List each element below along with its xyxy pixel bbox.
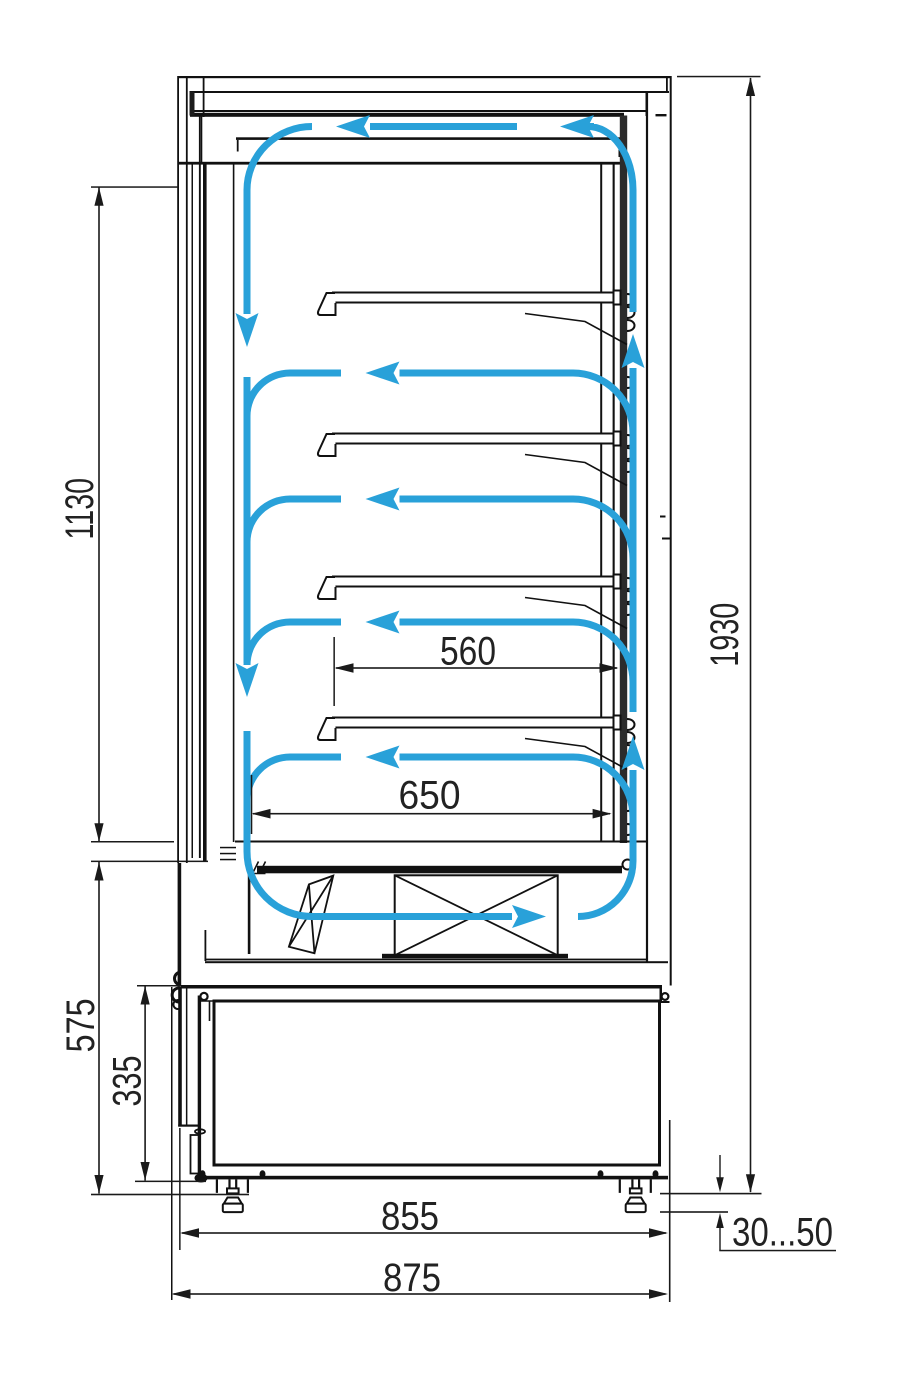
svg-text:855: 855 (381, 1195, 439, 1239)
svg-text:1130: 1130 (58, 478, 102, 540)
svg-text:575: 575 (59, 998, 103, 1052)
svg-text:560: 560 (440, 630, 496, 674)
svg-text:875: 875 (383, 1256, 441, 1300)
svg-text:335: 335 (105, 1056, 149, 1107)
svg-text:30...50: 30...50 (732, 1211, 833, 1255)
svg-text:650: 650 (399, 773, 461, 817)
svg-text:1930: 1930 (703, 603, 747, 667)
